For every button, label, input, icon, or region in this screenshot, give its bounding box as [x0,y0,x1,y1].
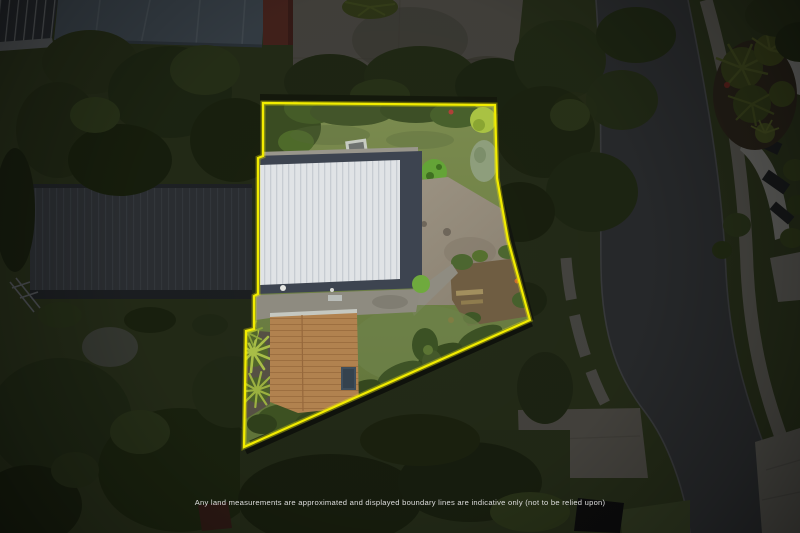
roof-white-panel [260,160,400,285]
corner-bush [412,275,430,293]
red-flower [449,110,454,115]
vent [328,295,342,301]
subject-house-roof [255,151,430,294]
aerial-property-photo: Any land measurements are approximated a… [0,0,800,533]
timber-deck [270,309,359,413]
aerial-photo-canvas [0,0,800,533]
